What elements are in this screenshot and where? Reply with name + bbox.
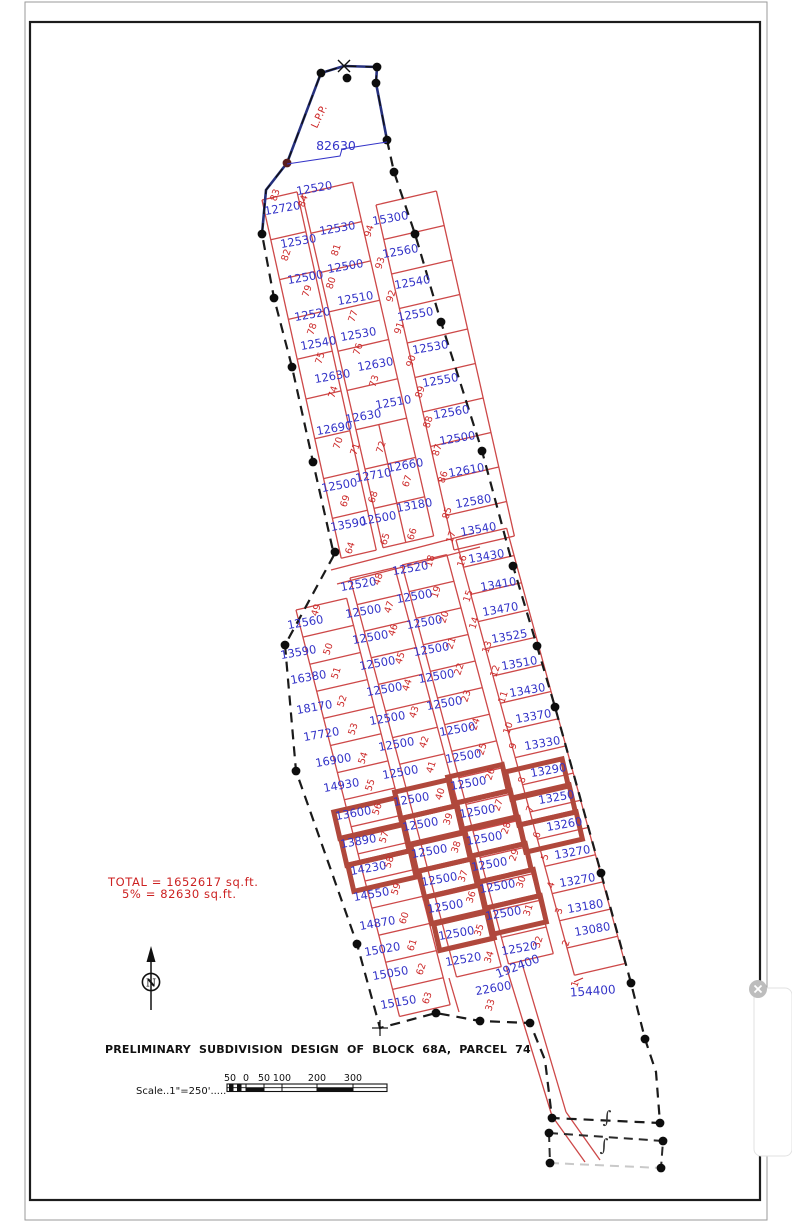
plat-drawing-page: 8312720821253079125007812520751254074126… [0,0,792,1224]
scale-tick-label: 50 [258,1073,270,1084]
survey-point [437,318,446,327]
survey-point [383,136,392,145]
scale-bar-fill [317,1088,353,1092]
scale-tick-label: 300 [344,1073,362,1084]
survey-point [509,562,518,571]
survey-point [390,168,399,177]
total-area-line2: 5% = 82630 sq.ft. [122,887,237,901]
survey-point-red [283,159,292,168]
survey-point [309,458,318,467]
survey-point [526,1019,535,1028]
drawing-title: PRELIMINARY SUBDIVISION DESIGN OF BLOCK … [105,1043,531,1056]
survey-point [353,940,362,949]
survey-point [656,1119,665,1128]
subdivision-map: 8312720821253079125007812520751254074126… [0,0,792,1224]
survey-point [317,69,326,78]
survey-point [478,447,487,456]
scale-tick-label: 200 [308,1073,326,1084]
boundary-area-label: 82630 [316,138,356,153]
survey-point [372,79,381,88]
survey-point [292,767,301,776]
survey-point [270,294,279,303]
survey-point [597,869,606,878]
scale-bar-fill [246,1088,264,1092]
survey-point [476,1017,485,1026]
survey-point [627,979,636,988]
overlay-panel [749,980,792,1156]
scale-tick-label: 100 [273,1073,291,1084]
survey-point [258,230,267,239]
overlay-panel-body[interactable] [754,988,792,1156]
survey-point [641,1035,650,1044]
survey-point [533,642,542,651]
survey-point [657,1164,666,1173]
survey-point [411,230,420,239]
survey-point [659,1137,668,1146]
survey-point [288,363,297,372]
survey-point [373,63,382,72]
section-symbol-2: ∫ [600,1136,609,1156]
survey-point [343,74,352,83]
survey-point [546,1159,555,1168]
survey-point [432,1009,441,1018]
scale-tick-label: 0 [243,1073,249,1084]
scale-label: Scale..1"=250'..... [136,1086,226,1097]
scale-tick-label: 50 [224,1073,236,1084]
survey-point [331,548,340,557]
survey-point [548,1114,557,1123]
survey-point [545,1129,554,1138]
survey-point [551,703,560,712]
section-symbol-1: ∫ [603,1108,612,1128]
